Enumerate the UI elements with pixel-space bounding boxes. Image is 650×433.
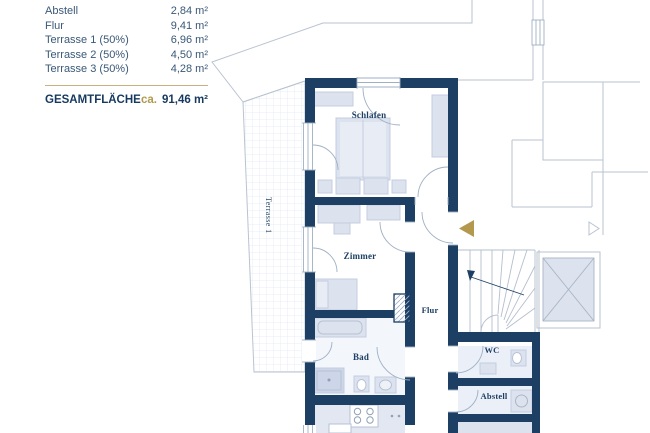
nightstand: [392, 180, 406, 193]
staircase: [458, 250, 539, 332]
room-label-bad: Bad: [336, 352, 386, 362]
room-label-abstell: Abstell: [469, 391, 519, 401]
floorplan-page: Abstell 2,84 m² Flur 9,41 m² Terrasse 1 …: [0, 0, 650, 433]
stair-direction-arrow-icon: [467, 270, 524, 295]
chair: [334, 223, 350, 234]
entrance-triangle-icon: [459, 220, 474, 237]
room-label-flur: Flur: [405, 305, 455, 315]
neighbour-entrance-triangle-icon: [589, 222, 599, 235]
pillow: [364, 178, 388, 194]
elevator-icon: [543, 258, 594, 321]
desk: [318, 205, 360, 223]
room-label-zimmer: Zimmer: [322, 251, 398, 261]
room-label-wc: WC: [467, 345, 517, 355]
nightstand: [318, 180, 332, 193]
room-label-terrasse-1: Terrasse 1: [264, 197, 273, 234]
wc-basin: [480, 363, 496, 374]
pillow: [336, 178, 360, 194]
dresser: [313, 92, 353, 106]
terrace-1-area: [243, 81, 305, 372]
kitchen-sink: [329, 424, 351, 433]
wardrobe: [432, 95, 450, 157]
stove: [350, 405, 378, 427]
room-label-schlafen: Schlafen: [330, 110, 408, 120]
floorplan-drawing: [0, 0, 650, 433]
shelf: [367, 205, 400, 220]
